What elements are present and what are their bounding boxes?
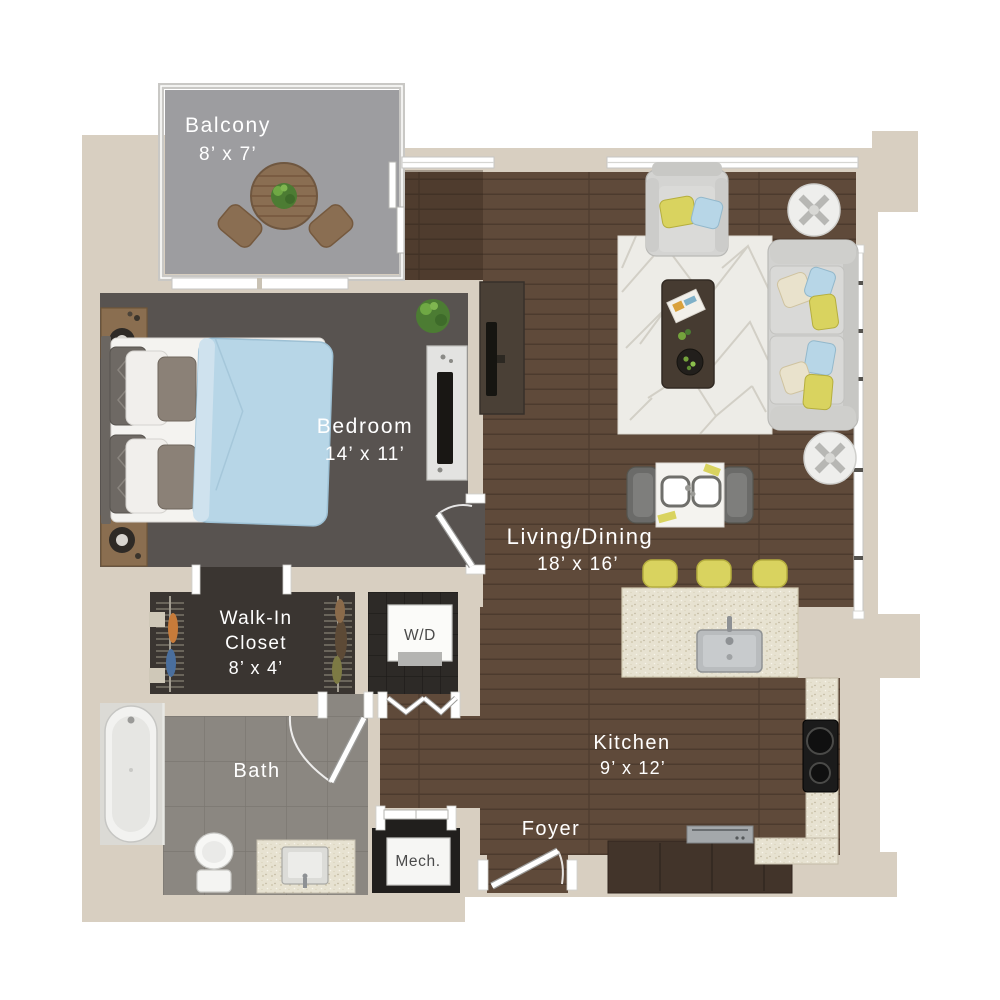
kitchen-island	[622, 588, 798, 677]
living-dining-dims: 18’ x 16’	[537, 554, 619, 575]
closet-shelf-box	[149, 668, 165, 683]
wd-label: W/D	[404, 627, 436, 644]
closet-shelf-box	[149, 612, 165, 627]
side-table-top	[788, 184, 840, 236]
burner-icon	[807, 728, 833, 754]
clothes-item	[335, 599, 345, 623]
bar-stools	[643, 560, 787, 587]
side-table-bottom	[804, 432, 856, 484]
kitchen-dims: 9’ x 12’	[600, 758, 666, 778]
bedroom-window-mullion	[257, 278, 262, 289]
closet-label-line2: Closet	[225, 633, 287, 654]
bathtub	[105, 706, 157, 842]
bedroom-dresser	[427, 346, 467, 480]
toilet	[195, 833, 233, 892]
dining-set	[627, 463, 753, 527]
tub-faucet-icon	[128, 717, 135, 724]
duvet	[193, 338, 333, 527]
bar-stool	[643, 560, 677, 587]
vanity-faucet-icon	[303, 878, 307, 888]
dishwasher	[687, 826, 753, 843]
island-faucet-icon	[727, 616, 732, 632]
lamp-icon	[116, 534, 128, 546]
mech-label: Mech.	[395, 853, 440, 870]
bar-stool	[753, 560, 787, 587]
bath-door-opening	[326, 694, 366, 716]
table-plant	[678, 332, 686, 340]
closet-label-line1: Walk-In	[220, 608, 293, 629]
balcony-label: Balcony	[185, 114, 271, 137]
clothes-item	[166, 649, 176, 677]
bedroom-tv	[437, 372, 453, 464]
clothes-item	[332, 656, 342, 684]
bedroom-dims: 14’ x 11’	[325, 444, 405, 465]
closet-dims: 8’ x 4’	[229, 658, 284, 678]
tv	[486, 322, 497, 396]
bed	[101, 336, 333, 526]
bath-label: Bath	[233, 760, 280, 782]
bedroom-plant	[416, 299, 450, 333]
throw-pillow	[690, 196, 724, 230]
throw-pillow	[803, 374, 834, 410]
armchair	[646, 162, 728, 256]
foyer-label: Foyer	[522, 818, 581, 840]
floorplan-canvas: Balcony 8’ x 7’ Bedroom 14’ x 11’ Walk-I…	[0, 0, 1000, 1000]
place-setting	[662, 477, 689, 506]
bath-vanity	[257, 840, 355, 893]
kitchen-label: Kitchen	[593, 732, 670, 754]
bowl	[677, 349, 703, 375]
bedroom-label: Bedroom	[317, 415, 413, 438]
place-setting	[693, 477, 720, 506]
tv-console	[480, 282, 524, 414]
throw-pillow	[659, 195, 697, 228]
living-dining-label: Living/Dining	[507, 524, 654, 549]
closet-opening	[199, 567, 284, 592]
sofa	[768, 240, 858, 430]
burner-icon	[810, 763, 830, 783]
balcony-dims: 8’ x 7’	[199, 144, 257, 165]
floorplan-page: Balcony 8’ x 7’ Bedroom 14’ x 11’ Walk-I…	[0, 0, 1000, 1000]
coffee-table	[662, 280, 714, 388]
patio-plant	[271, 183, 297, 209]
throw-pillow	[809, 293, 839, 330]
clothes-item	[168, 613, 178, 643]
bar-stool	[697, 560, 731, 587]
cooktop	[803, 720, 838, 792]
floor-shading	[405, 170, 483, 280]
entry-door-opening	[487, 852, 568, 893]
clothes-item	[335, 620, 347, 660]
